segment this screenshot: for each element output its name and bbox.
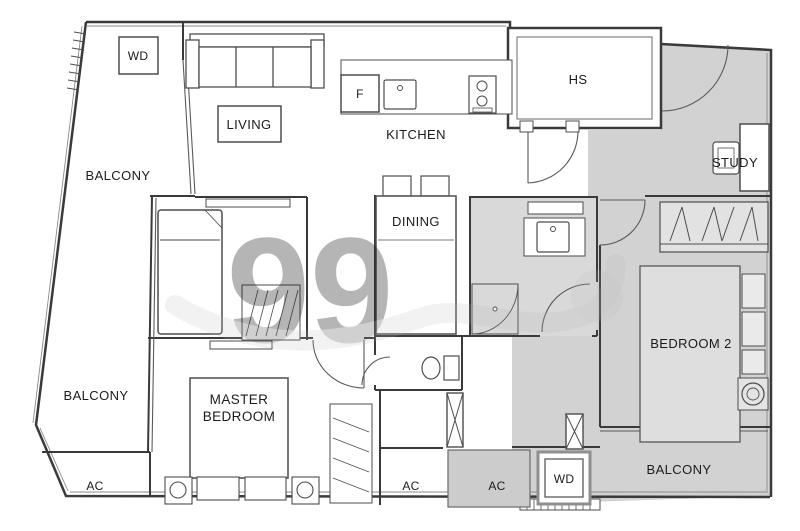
lamp-right-icon — [297, 482, 313, 498]
label-master-line1: MASTER — [210, 392, 269, 407]
stove-burner-1 — [477, 81, 487, 91]
label-balcony-bottom-right: BALCONY — [647, 462, 712, 477]
hs-door-jamb-right — [566, 121, 579, 132]
kitchen-counter — [341, 60, 512, 114]
stove-control-strip — [473, 108, 492, 112]
label-ac-bottom-middle: AC — [402, 479, 419, 493]
master-wardrobe-box — [330, 404, 372, 503]
label-kitchen: KITCHEN — [386, 127, 446, 142]
sink-tap-icon — [398, 86, 403, 91]
label-bedroom-2: BEDROOM 2 — [650, 336, 732, 351]
sofa-seat — [199, 47, 311, 87]
label-hs: HS — [569, 72, 588, 87]
watermark-blob — [571, 270, 623, 322]
hs-door-jamb-left — [520, 121, 533, 132]
sofa-arm-left — [186, 40, 199, 88]
stove-burner-2 — [477, 96, 487, 106]
label-balcony-bottom-left: BALCONY — [64, 388, 129, 403]
label-master-line2: BEDROOM — [203, 409, 276, 424]
label-dining: DINING — [392, 214, 440, 229]
master-pillow-1 — [197, 477, 239, 500]
bedroom2-side-shelf — [742, 350, 765, 374]
toilet-tank — [444, 356, 459, 380]
kitchen-sink-icon — [384, 80, 416, 109]
sofa-icon — [186, 34, 324, 88]
toilet-bowl — [422, 357, 440, 379]
label-fridge: F — [356, 87, 364, 101]
bedroom2-pillow-1 — [742, 274, 765, 308]
label-wd-bottom-right: WD — [554, 472, 575, 486]
basin-tap-icon — [551, 227, 556, 232]
sofa-back — [190, 34, 324, 47]
floor-plan: 99 WD BALCONY LIVING F KITCHEN HS STUDY … — [0, 0, 800, 531]
bedroom2-pillow-2 — [742, 312, 765, 346]
label-ac-bottom-left: AC — [86, 479, 103, 493]
label-study: STUDY — [712, 155, 758, 170]
dining-chair-2 — [421, 176, 449, 196]
master-pillow-2 — [245, 477, 286, 500]
lamp-left-icon — [170, 482, 186, 498]
label-wd-top-left: WD — [128, 49, 149, 63]
bathroom-shelf — [528, 202, 583, 214]
floor-plan-page: 99 WD BALCONY LIVING F KITCHEN HS STUDY … — [0, 0, 800, 531]
bedroom2-bed-icon — [640, 266, 740, 442]
label-balcony-top-left: BALCONY — [86, 168, 151, 183]
label-ac-bottom-right: AC — [488, 479, 505, 493]
label-living: LIVING — [226, 117, 271, 132]
sofa-arm-right — [311, 40, 324, 88]
dining-chair-1 — [383, 176, 411, 196]
